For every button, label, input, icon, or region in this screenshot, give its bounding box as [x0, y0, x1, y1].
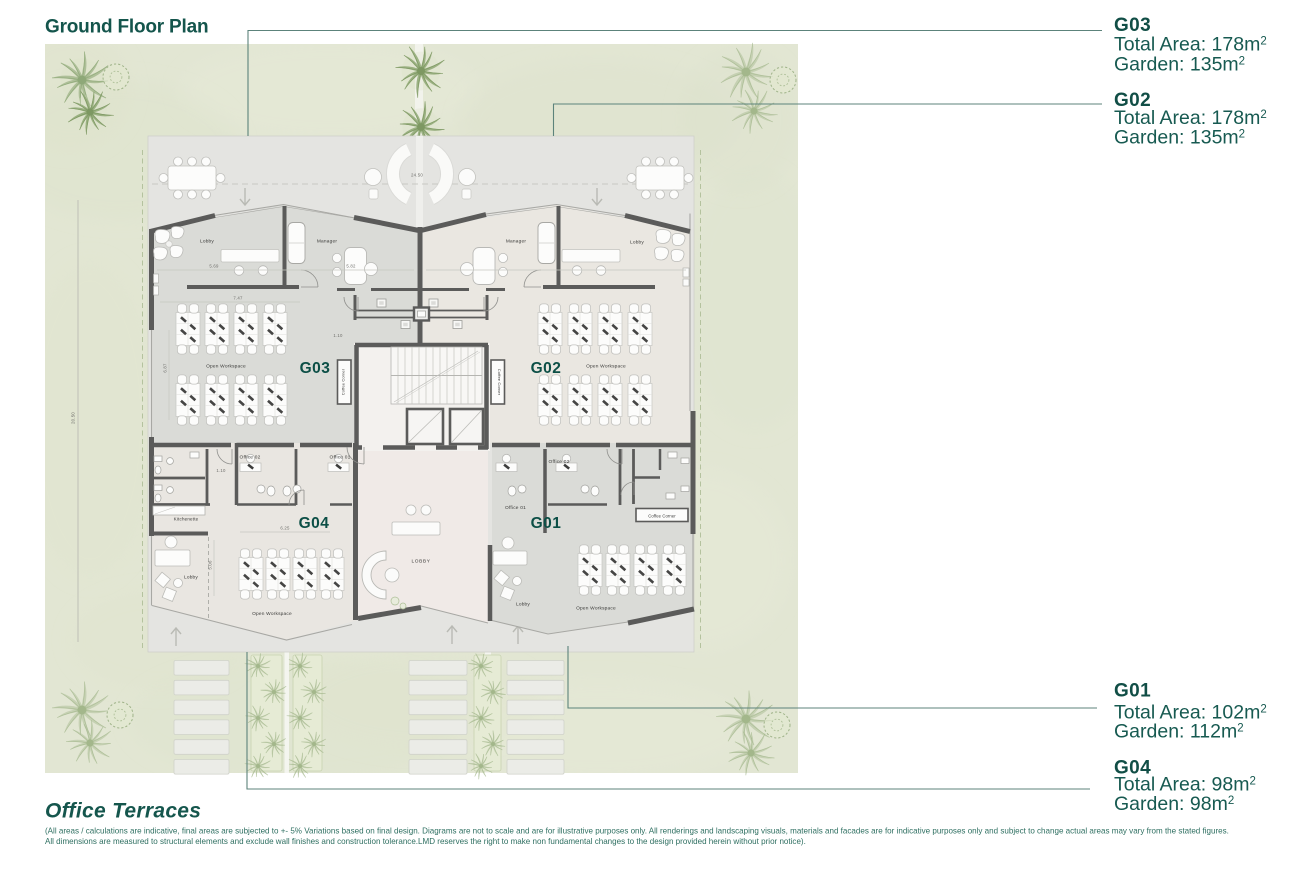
svg-text:G04: G04 [299, 515, 330, 532]
svg-text:Coffee Corner: Coffee Corner [341, 368, 346, 395]
svg-text:Garden: 135m2: Garden: 135m2 [1114, 54, 1245, 76]
svg-text:Office 02: Office 02 [549, 459, 570, 465]
svg-text:7.47: 7.47 [233, 296, 243, 301]
svg-text:6.87: 6.87 [163, 363, 168, 373]
svg-text:G03: G03 [300, 360, 331, 377]
svg-text:24.50: 24.50 [411, 173, 423, 178]
svg-text:6.25: 6.25 [280, 526, 290, 531]
svg-text:Lobby: Lobby [516, 602, 530, 608]
svg-text:Office Terraces: Office Terraces [45, 800, 201, 823]
svg-text:G01: G01 [531, 515, 562, 532]
svg-text:LOBBY: LOBBY [412, 559, 431, 565]
svg-text:Lobby: Lobby [200, 239, 214, 245]
svg-text:Ground Floor Plan: Ground Floor Plan [45, 17, 208, 38]
svg-text:20.50: 20.50 [71, 412, 76, 424]
svg-text:5.06: 5.06 [208, 560, 213, 570]
svg-text:Office 02: Office 02 [240, 455, 261, 461]
svg-text:Garden: 112m2: Garden: 112m2 [1114, 721, 1244, 743]
svg-text:Kitchenette: Kitchenette [174, 517, 199, 522]
svg-text:5.82: 5.82 [346, 264, 356, 269]
svg-text:Total Area: 178m2: Total Area: 178m2 [1114, 33, 1267, 55]
svg-text:Coffee Corner: Coffee Corner [497, 369, 502, 396]
svg-text:Open Workspace: Open Workspace [586, 364, 626, 370]
svg-text:Garden: 135m2: Garden: 135m2 [1114, 127, 1245, 149]
svg-text:Open Workspace: Open Workspace [206, 364, 246, 370]
svg-text:G02: G02 [531, 360, 562, 377]
svg-text:Garden: 98m2: Garden: 98m2 [1114, 793, 1234, 815]
svg-text:Office 01: Office 01 [505, 505, 526, 511]
svg-text:Lobby: Lobby [184, 575, 198, 581]
svg-text:1.10: 1.10 [216, 468, 226, 473]
svg-text:Open Workspace: Open Workspace [576, 606, 616, 612]
svg-text:(All areas / calculations are: (All areas / calculations are indicative… [45, 827, 1229, 836]
svg-text:Office 01: Office 01 [330, 455, 351, 461]
svg-text:1.10: 1.10 [333, 333, 343, 338]
svg-text:Open Workspace: Open Workspace [252, 611, 292, 617]
svg-text:Lobby: Lobby [630, 240, 644, 246]
svg-text:Coffee Corner: Coffee Corner [648, 513, 676, 518]
svg-text:Manager: Manager [506, 239, 527, 245]
svg-text:G01: G01 [1114, 681, 1151, 702]
svg-text:Manager: Manager [317, 239, 338, 245]
svg-text:All dimensions are measured to: All dimensions are measured to structura… [45, 837, 806, 846]
svg-text:5.69: 5.69 [209, 264, 219, 269]
